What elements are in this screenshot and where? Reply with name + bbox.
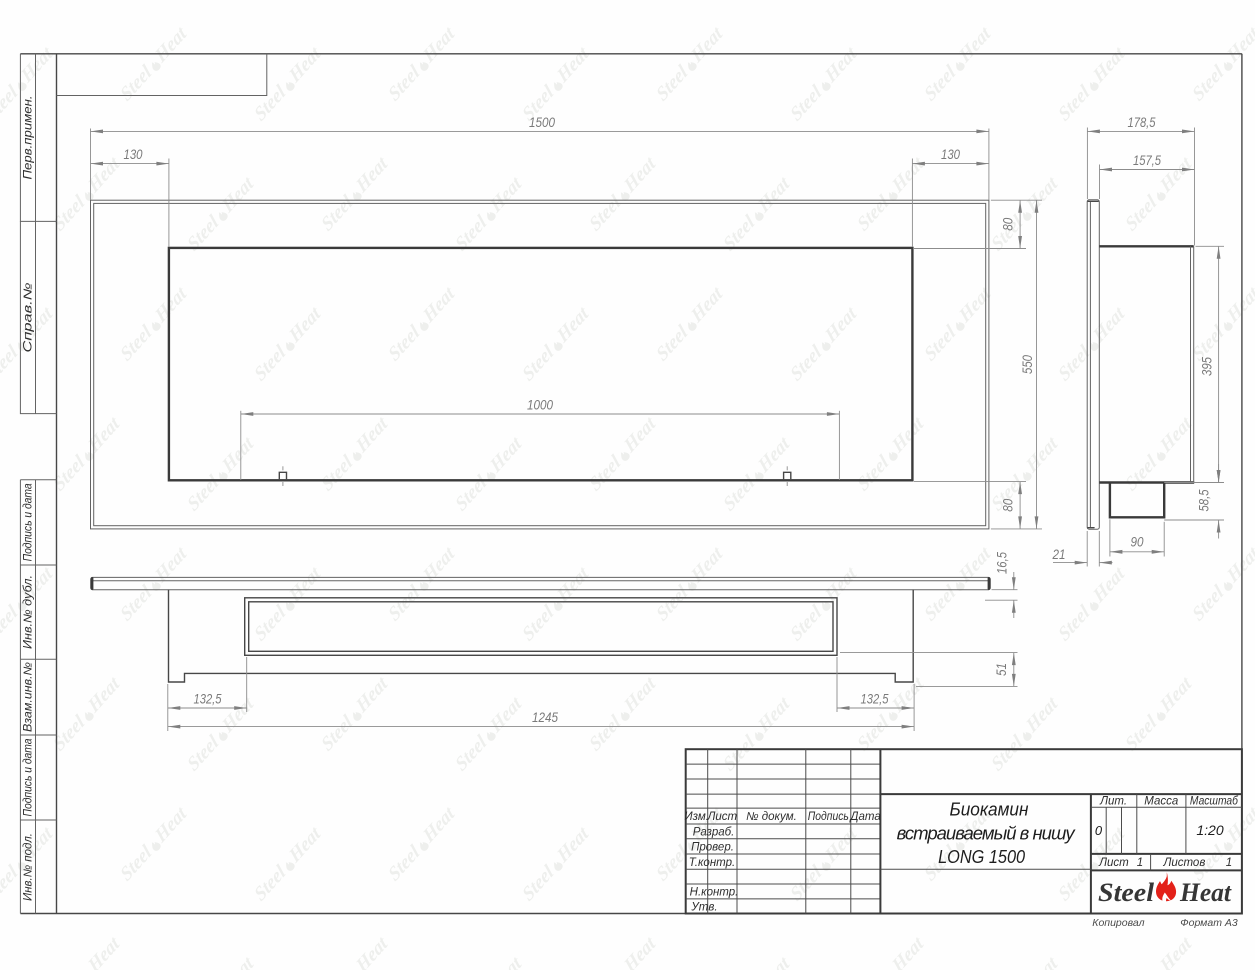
svg-text:178,5: 178,5 [1128,115,1156,130]
svg-text:Steel: Steel [1098,878,1155,907]
svg-text:Масса: Масса [1144,796,1178,808]
svg-text:132,5: 132,5 [861,691,889,706]
svg-text:58,5: 58,5 [1197,489,1212,511]
svg-text:Листов: Листов [1162,857,1205,869]
svg-text:21: 21 [1052,547,1066,562]
svg-text:Разраб.: Разраб. [693,826,735,838]
svg-text:Лист: Лист [706,811,737,823]
svg-text:1:20: 1:20 [1196,822,1223,838]
svg-text:1: 1 [1226,857,1232,869]
svg-text:16,5: 16,5 [995,552,1010,574]
svg-text:157,5: 157,5 [1133,153,1161,168]
svg-text:Инв.№ подл.: Инв.№ подл. [23,833,35,901]
svg-text:80: 80 [1001,217,1016,230]
svg-text:130: 130 [941,147,960,162]
svg-text:№ докум.: № докум. [746,811,797,823]
svg-text:Изм.: Изм. [684,811,709,823]
svg-text:Копировал: Копировал [1092,917,1144,929]
svg-text:Подпись: Подпись [808,811,849,823]
svg-text:встраиваемый в нишу: встраиваемый в нишу [897,823,1077,844]
svg-text:80: 80 [1001,498,1016,511]
svg-text:51: 51 [994,663,1009,676]
svg-text:1: 1 [1137,857,1143,869]
svg-text:Подпись и дата: Подпись и дата [23,739,35,817]
svg-text:132,5: 132,5 [194,691,222,706]
svg-text:130: 130 [124,147,143,162]
svg-text:Heat: Heat [1179,878,1232,907]
svg-text:1500: 1500 [529,115,555,130]
svg-text:Подпись и дата: Подпись и дата [23,483,35,561]
svg-text:Н.контр.: Н.контр. [690,887,739,899]
svg-text:Т.контр.: Т.контр. [689,857,735,869]
svg-text:0: 0 [1095,823,1103,838]
svg-text:550: 550 [1020,355,1035,374]
svg-text:1000: 1000 [527,398,553,413]
svg-text:Инв.№ дубл.: Инв.№ дубл. [23,575,35,649]
svg-text:1245: 1245 [532,710,558,725]
svg-text:Утв.: Утв. [690,901,717,913]
svg-text:Взам.инв.№: Взам.инв.№ [23,661,35,732]
svg-text:Перв.примен.: Перв.примен. [23,96,35,180]
svg-text:Формат А3: Формат А3 [1180,917,1238,929]
svg-text:395: 395 [1199,357,1214,376]
svg-text:LONG 1500: LONG 1500 [938,846,1026,867]
svg-text:Лист: Лист [1098,857,1129,869]
svg-text:Биокамин: Биокамин [950,799,1029,820]
svg-text:90: 90 [1131,534,1144,549]
svg-text:Дата: Дата [848,811,880,823]
svg-text:Справ.№: Справ.№ [23,282,35,353]
svg-text:Масштаб: Масштаб [1190,796,1238,808]
svg-text:Провер.: Провер. [691,842,734,854]
svg-text:Лит.: Лит. [1099,796,1127,808]
